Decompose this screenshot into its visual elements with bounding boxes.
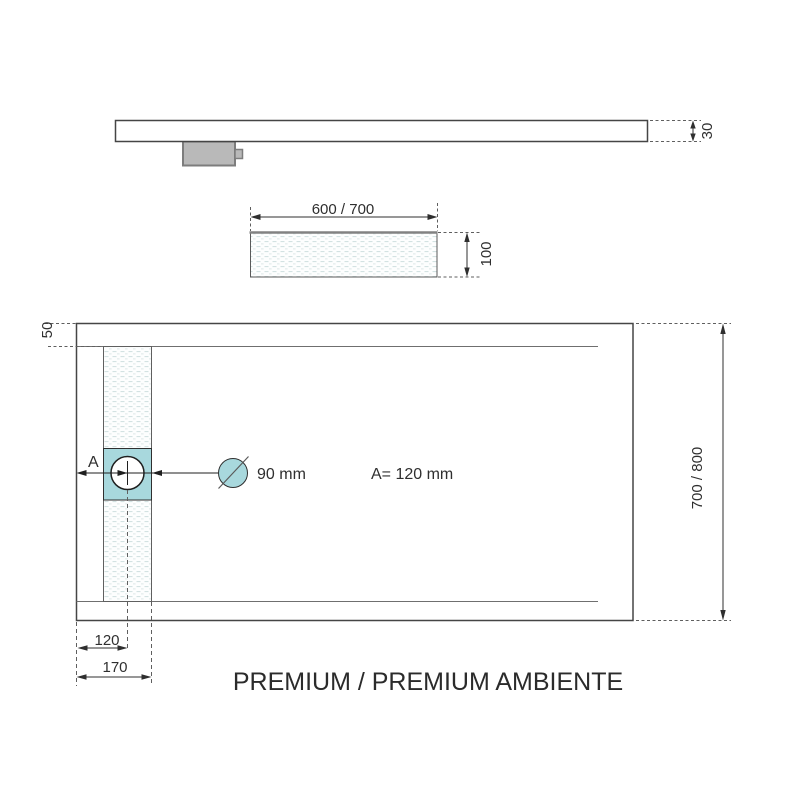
drain-trap-box — [183, 142, 235, 166]
page-title: PREMIUM / PREMIUM AMBIENTE — [233, 668, 623, 696]
extension-dashed-lines — [636, 324, 731, 621]
depth-dimension: 100 — [438, 233, 495, 278]
arrowhead-down-icon — [464, 268, 469, 278]
drain-center-dim-label: 120 — [94, 632, 119, 649]
drain-diameter-label: 90 mm — [257, 466, 306, 483]
thickness-dimension-label: 30 — [699, 123, 716, 140]
plan-view: A 90 mm A= 120 mm 50 700 / 800 120 — [39, 322, 731, 686]
technical-drawing-canvas: 30 600 / 700 100 — [0, 0, 800, 800]
shower-tray-drawing: 30 600 / 700 100 — [0, 0, 800, 800]
section-body — [251, 233, 438, 278]
arrowhead-right-icon — [142, 674, 152, 680]
arrowhead-up-icon — [464, 233, 469, 243]
drain-offset-value-label: A= 120 mm — [371, 466, 453, 483]
arrowhead-up-icon — [690, 121, 695, 129]
thickness-dimension: 30 — [650, 121, 716, 142]
arrowhead-left-icon — [78, 645, 88, 651]
length-dimension: 700 / 800 — [636, 324, 731, 621]
extension-dashed-lines — [438, 233, 480, 278]
arrowhead-right-icon — [428, 214, 438, 220]
arrowhead-down-icon — [690, 134, 695, 142]
channel-edge-dim-label: 170 — [102, 659, 127, 676]
length-label: 700 / 800 — [689, 447, 706, 510]
offset-letter-label: A — [88, 454, 99, 471]
arrowhead-up-icon — [720, 324, 725, 335]
arrowhead-left-icon — [251, 214, 261, 220]
rim-width-label: 50 — [39, 322, 56, 339]
side-profile-view: 30 — [116, 121, 717, 166]
width-dimension: 600 / 700 — [251, 201, 438, 231]
drain-trap-outlet-tab — [235, 150, 243, 159]
cross-section-view: 600 / 700 100 — [250, 201, 496, 277]
tray-side-outline — [116, 121, 648, 142]
section-width-label: 600 / 700 — [312, 201, 375, 218]
arrowhead-down-icon — [720, 610, 725, 621]
section-depth-label: 100 — [478, 241, 495, 266]
arrowhead-left-icon — [77, 674, 87, 680]
